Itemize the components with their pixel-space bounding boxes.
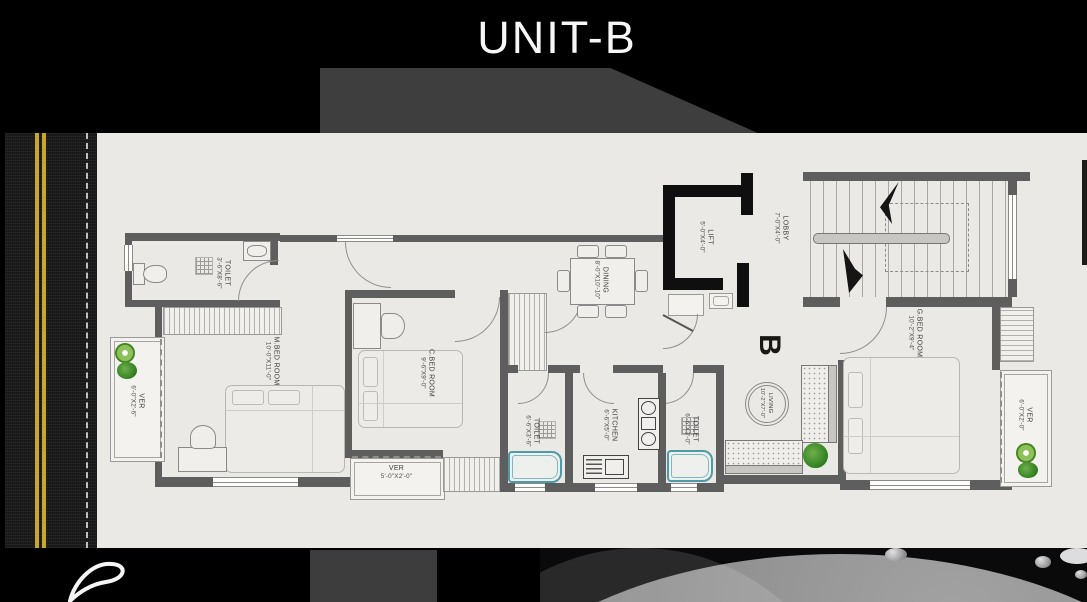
dining-chair (577, 305, 599, 318)
road-strip (5, 133, 97, 548)
road-dashed-line (86, 133, 88, 548)
pillow (268, 390, 300, 405)
wall-wetblock-top-b (548, 365, 580, 373)
pillow (363, 391, 378, 421)
duct-box-1 (668, 294, 704, 316)
duct-box-2 (709, 293, 733, 309)
page-title: UNIT-B (387, 12, 727, 64)
pillow (232, 390, 264, 405)
plant-ver-right-bush (1018, 462, 1038, 478)
door-arc-mbed (345, 242, 391, 288)
dining-chair (577, 245, 599, 258)
sink-toilet-master (243, 241, 271, 261)
window-toilet-master (124, 245, 133, 271)
desk-master (178, 447, 227, 472)
bed-line (359, 403, 462, 404)
wall-toilet-master-bottom (125, 300, 280, 307)
shower-grid-common (538, 421, 556, 439)
sink-basin (247, 245, 267, 257)
duct-box-2-inner (713, 296, 729, 306)
plant-ver-right-flower (1016, 443, 1036, 463)
pillow (363, 357, 378, 387)
dining-chair (557, 270, 570, 292)
wall-lift-right-upper (741, 173, 753, 215)
road-yellow-line-1 (35, 133, 39, 548)
stove-burner (641, 432, 656, 446)
door-arc-gbed (840, 307, 887, 354)
pillow (848, 372, 863, 408)
wall-lift-bottom (663, 278, 723, 290)
wall-gbed-right (992, 297, 1000, 370)
window-kitchen (595, 483, 637, 492)
bed-line (226, 410, 344, 411)
sofa-long (801, 365, 837, 443)
window-stairs (1008, 195, 1017, 279)
signature-swoosh (58, 549, 148, 602)
stair-rail (813, 233, 950, 244)
door-arc-toilet-master (238, 260, 279, 301)
wall-cbed-left (345, 290, 352, 455)
door-arc-toilet-guest (663, 373, 694, 404)
window-gbed (870, 480, 970, 490)
wall-lift-right-lower (737, 263, 749, 307)
water-drop (885, 548, 907, 561)
brochure-page: UNIT-B TOILET3'-6"X8'-6" (0, 0, 1087, 602)
hatch-passage (508, 293, 547, 371)
bed-master (225, 385, 345, 473)
stove-burner (641, 401, 656, 415)
wall-toilet-kitchen (565, 373, 573, 490)
verandah-bottom-dashed-edge (352, 456, 441, 458)
bed-child (358, 350, 463, 428)
bed-guest (843, 357, 960, 474)
dining-chair (605, 245, 627, 258)
water-drop (1060, 548, 1087, 564)
water-drop (1075, 570, 1087, 579)
window-toilet-common (515, 483, 545, 492)
plant-ver-left-bush (117, 362, 137, 379)
bed-line (844, 436, 959, 437)
window-mbed (213, 477, 298, 487)
plant-living (803, 443, 828, 468)
chair-master (190, 425, 216, 449)
sink-basin (605, 459, 624, 475)
gray-card (310, 550, 437, 602)
wall-living-bottom (718, 475, 843, 484)
wc-bowl (143, 265, 167, 283)
door-arc-cbed (455, 297, 500, 342)
photo-strip (540, 548, 1087, 602)
sofa-short (725, 440, 803, 474)
sofa-rail (726, 465, 802, 473)
wall-toilet-master-top (125, 233, 280, 241)
plant-ver-left-flower (115, 343, 135, 363)
dining-chair (605, 305, 627, 318)
window-top-exterior (337, 235, 393, 242)
room-label-ver-bottom: VER5'-0"X2'-0" (354, 464, 439, 481)
bottom-band (0, 548, 1087, 602)
water-drop (1035, 556, 1051, 568)
bathtub-guest (667, 450, 713, 482)
sofa-rail (828, 366, 836, 442)
wall-wetblock-top-a (500, 365, 518, 373)
dining-chair (635, 270, 648, 292)
bed-line (383, 351, 384, 427)
desk-child (353, 303, 381, 349)
verandah-left-dashed-edge (160, 339, 162, 458)
window-toilet-guest (671, 483, 697, 492)
chair-child (381, 313, 405, 339)
stove-oven (641, 417, 656, 430)
door-arc-toilet-common (518, 373, 549, 404)
wall-toilet-living (716, 365, 724, 483)
wall-lift-top (663, 185, 753, 197)
stove (638, 398, 660, 450)
wall-stairs-top (803, 172, 1030, 181)
wall-central-vertical (500, 290, 508, 490)
bathtub-common (508, 451, 562, 483)
wall-lift-left (663, 185, 675, 290)
wardrobe-hatch-gbed (1000, 307, 1034, 362)
wardrobe-hatch-mbed (163, 307, 282, 335)
wall-cbed-top (345, 290, 455, 298)
door-arc-kitchen (583, 373, 614, 404)
kitchen-sink (583, 455, 629, 479)
sink-drainboard (586, 458, 602, 474)
road-yellow-line-2 (42, 133, 46, 548)
bed-line (870, 358, 871, 473)
wall-stairs-bottom-a (803, 297, 840, 307)
bed-line (312, 386, 313, 472)
shower-grid-master (195, 257, 213, 275)
wall-wetblock-top-c (613, 365, 663, 373)
verandah-right-dashed-edge (1000, 372, 1002, 483)
brochure-curve-shape (320, 68, 760, 134)
hatch-ledge-bottom (443, 457, 505, 492)
floor-plan: TOILET3'-6"X8'-6" M.BED ROOM10'-0"X11'-0… (97, 133, 1087, 548)
plan-right-edge (1082, 160, 1087, 265)
